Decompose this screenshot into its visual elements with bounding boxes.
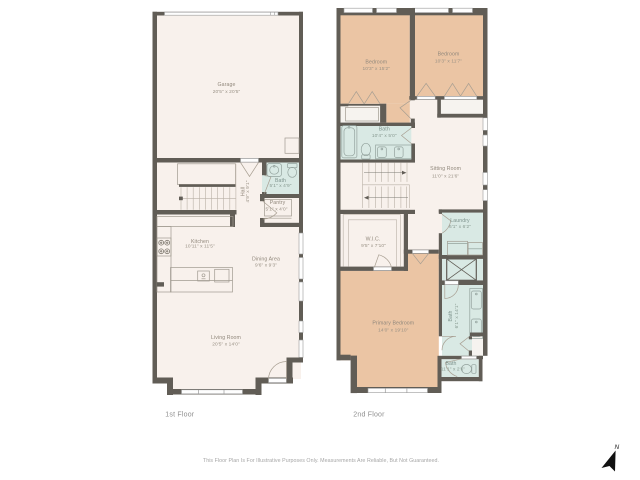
- svg-text:20'5" x 14'0": 20'5" x 14'0": [212, 342, 240, 348]
- svg-text:9'5" x 7'10": 9'5" x 7'10": [361, 243, 386, 249]
- svg-text:Pantry: Pantry: [270, 200, 286, 206]
- svg-text:Dining Area: Dining Area: [252, 257, 280, 263]
- svg-text:1st Floor: 1st Floor: [165, 412, 194, 419]
- svg-text:4'9" x 9'1": 4'9" x 9'1": [245, 180, 251, 202]
- svg-text:6'1" x 6'2": 6'1" x 6'2": [449, 224, 471, 230]
- svg-text:5'1" x 4'9": 5'1" x 4'9": [269, 183, 291, 189]
- svg-text:14'0" x 19'10": 14'0" x 19'10": [378, 327, 409, 333]
- svg-text:10'11" x 11'5": 10'11" x 11'5": [185, 244, 215, 250]
- svg-text:6'1" x 14'1": 6'1" x 14'1": [454, 303, 460, 328]
- svg-text:20'5" x 20'5": 20'5" x 20'5": [213, 89, 241, 95]
- svg-text:Bath: Bath: [445, 361, 456, 367]
- svg-text:Living Room: Living Room: [211, 335, 241, 341]
- svg-text:Bath: Bath: [379, 126, 390, 132]
- svg-text:9'6" x 9'3": 9'6" x 9'3": [255, 263, 277, 269]
- svg-text:5'1" x 4'0": 5'1" x 4'0": [265, 207, 287, 213]
- svg-text:Bedroom: Bedroom: [365, 59, 387, 65]
- svg-text:This Floor Plan Is For Illustr: This Floor Plan Is For Illustrative Purp…: [203, 458, 439, 464]
- svg-text:10'3" x 15'2": 10'3" x 15'2": [362, 66, 390, 72]
- svg-text:10'3" x 11'7": 10'3" x 11'7": [435, 58, 462, 64]
- svg-text:N: N: [615, 444, 620, 451]
- svg-text:Bedroom: Bedroom: [438, 52, 460, 58]
- svg-text:2nd Floor: 2nd Floor: [353, 411, 385, 418]
- svg-text:11'1" x 2'6": 11'1" x 2'6": [441, 367, 466, 373]
- svg-text:Sitting Room: Sitting Room: [430, 166, 461, 172]
- svg-text:Bath: Bath: [448, 310, 454, 321]
- svg-text:11'0" x 21'6": 11'0" x 21'6": [432, 174, 459, 180]
- svg-text:Laundry: Laundry: [450, 218, 470, 224]
- svg-text:10'4" x 5'0": 10'4" x 5'0": [372, 133, 397, 139]
- svg-text:W.I.C.: W.I.C.: [366, 236, 381, 242]
- svg-text:Garage: Garage: [218, 82, 236, 88]
- svg-text:Primary Bedroom: Primary Bedroom: [372, 320, 414, 326]
